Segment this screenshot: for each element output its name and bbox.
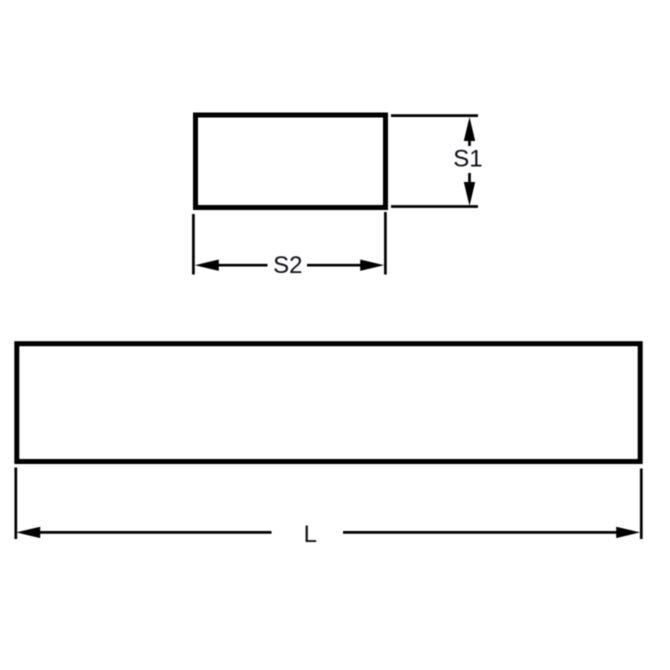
svg-text:S2: S2 [273,252,302,279]
svg-text:S1: S1 [453,146,482,173]
svg-text:L: L [304,521,317,548]
